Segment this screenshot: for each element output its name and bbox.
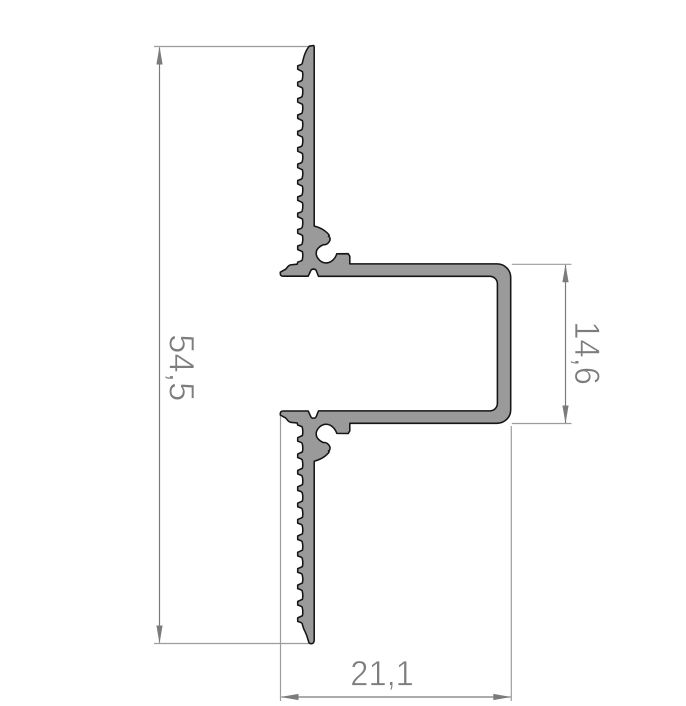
svg-text:21,1: 21,1 [350,653,414,693]
svg-text:54,5: 54,5 [162,334,202,401]
svg-text:14,6: 14,6 [567,321,607,385]
